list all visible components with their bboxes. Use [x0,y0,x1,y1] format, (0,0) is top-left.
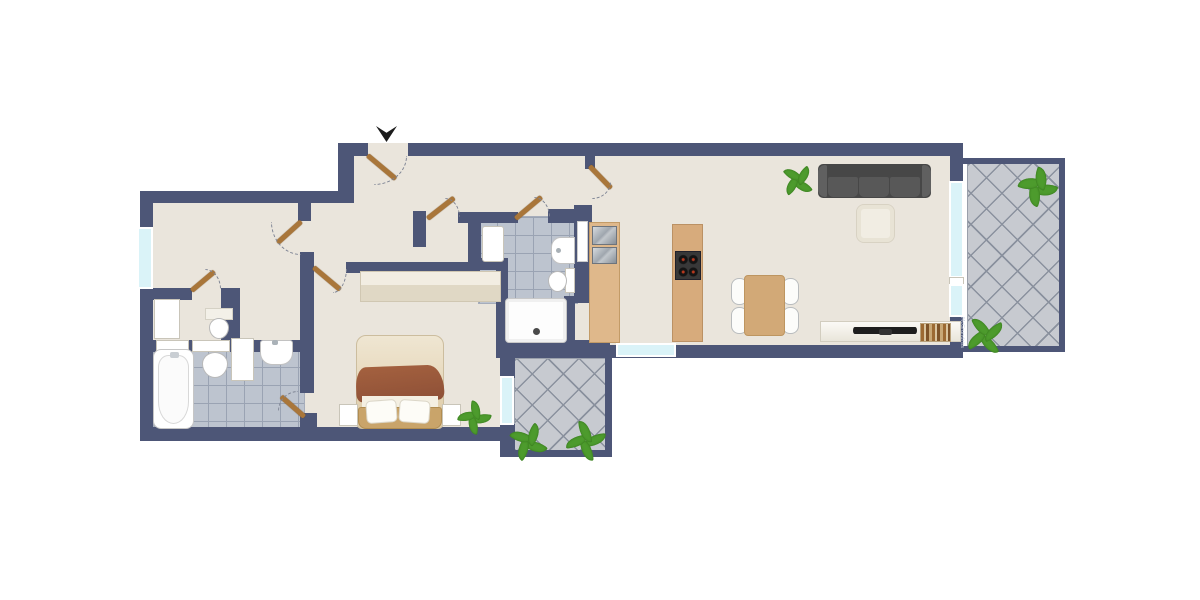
floor-plan: McGrundriss [0,0,1200,600]
sofa-seat-1 [828,177,858,197]
radiator-shower-room [577,221,588,262]
wall-hall-room-jamb [298,203,311,221]
kitchen-island [672,224,703,342]
entrance-arrow [376,126,397,142]
plant-bedroom [459,397,490,430]
wall-top-left-room [140,191,354,203]
bed-pillow-right [398,399,431,424]
wardrobe-bedroom [360,271,501,302]
kitchen-sink-lower [592,247,617,264]
wall-closet-left [413,211,426,247]
dining-table [744,275,785,336]
sink-bathroom-tap [272,340,278,345]
bathroom-shelf-right [192,340,230,352]
shower-tray [505,298,567,343]
bathtub-inner [158,355,189,424]
sofa-seat-3 [890,177,920,197]
washing-machine [231,338,254,381]
window-living-sliding-upper [949,181,964,278]
nightstand-left [339,404,358,426]
shower-room-cabinet [482,226,504,262]
sink-shower-room-tap [556,248,561,253]
watermark: McGrundriss [953,317,965,357]
window-bedroom-balcony-door [500,376,514,425]
wall-shower-room-top-right [548,209,576,223]
window-left-room [137,227,153,289]
wc-cabinet [154,299,180,339]
wall-left-of-entrance [352,143,368,156]
coffee-table [856,204,895,243]
wall-balcony-right-outer-edge [1059,158,1065,352]
sofa-armrest-left [818,165,827,197]
bathtub-faucet [170,352,179,358]
window-living-sliding-lower [949,284,964,317]
tv-stand [879,329,892,335]
books [920,323,951,342]
bed-pillow-left [365,399,398,424]
wall-closet-top-right [458,212,518,223]
sink-shower-room [551,237,575,264]
cooktop [675,251,701,280]
wall-bedroom-left [300,252,314,393]
window-kitchen [616,343,676,357]
sofa-seat-2 [859,177,889,197]
wall-top-main [408,143,963,156]
plant-balcony-right-top [1017,159,1059,205]
shower-drain [533,328,540,335]
wall-bedroom-right-upper [500,340,515,378]
kitchen-sink-upper [592,226,617,245]
sofa-armrest-right [922,165,931,197]
